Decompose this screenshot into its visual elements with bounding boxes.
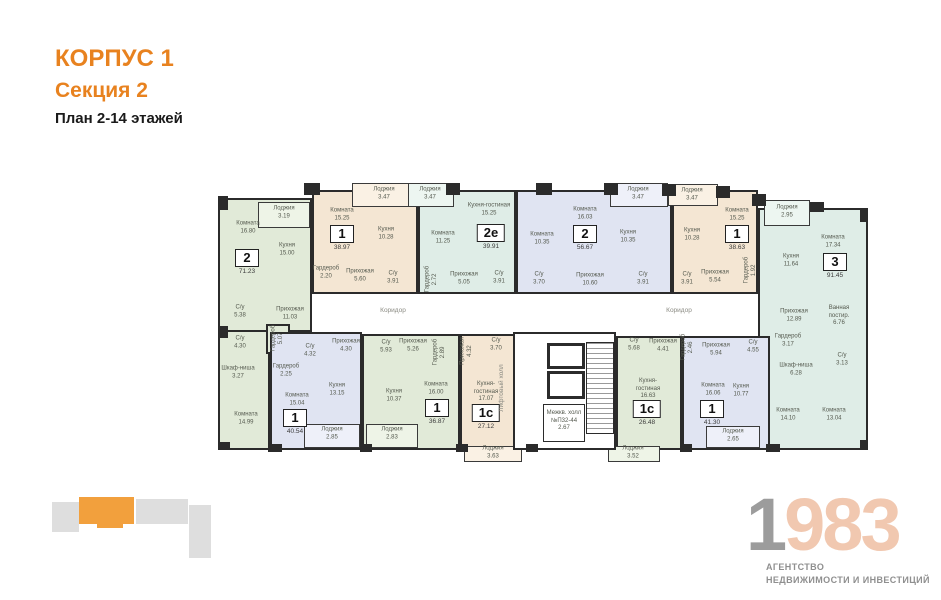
room-label: Комната17.34 [811,235,855,250]
wall-pier [766,444,780,452]
room-label: Ванная постир.6.76 [822,305,856,328]
room-label: Комната15.25 [320,208,364,223]
wall-pier [810,202,824,212]
building-title: КОРПУС 1 [55,42,183,76]
room-label: Лоджия3.52 [611,446,655,461]
apartment-badge: 391.45 [823,253,847,279]
wall-pier [218,442,230,450]
room-label: Комната16.03 [563,207,607,222]
apartment-badge: 271.23 [235,249,259,275]
section-title: Секция 2 [55,76,183,106]
wall-pier [526,444,538,452]
room-label: Кухня-гостиная15.25 [467,203,511,218]
room-label: Кухня10.37 [372,389,416,404]
room-label: Гардероб2.89 [433,339,448,365]
mini-plan-current-section [79,497,134,524]
room-label: Комната10.35 [520,232,564,247]
room-label: Гардероб5.07 [271,325,286,351]
room-label: Лоджия2.95 [765,205,809,220]
wall-pier [360,444,372,452]
mini-plan-current-section-notch [97,524,123,528]
mini-plan-block [52,502,79,532]
room-label: Шкаф-ниша3.27 [216,366,260,381]
room-label: С/у5.38 [218,305,262,320]
room-label: Комната16.80 [226,221,270,236]
room-label: Лоджия3.19 [262,206,306,221]
room-label: С/у3.91 [477,271,521,286]
apartment-badge: 1с27.12 [472,404,500,430]
apartment-badge: 1с26.48 [633,400,661,426]
wall-pier [680,444,692,452]
room-label: Лоджия3.47 [408,187,452,202]
room-label: С/у3.91 [371,271,415,286]
room-label: Комната14.99 [224,412,268,427]
room-label: Гардероб2.72 [425,266,440,292]
room-label: С/у4.32 [288,344,332,359]
apartment-badge: 140.54 [283,409,307,435]
apartment-badge: 138.97 [330,225,354,251]
room-label: Комната16.00 [414,382,458,397]
room-label: Шкаф-ниша6.28 [768,363,824,378]
room-label: Кухня13.15 [315,383,359,398]
room-label: Лоджия3.63 [471,446,515,461]
inter-hall-label: Межкв. холл№П32-442.67 [546,410,582,433]
room-label: С/у4.55 [731,340,775,355]
wall-pier [536,183,552,195]
room-label: С/у3.70 [517,272,561,287]
wall-pier [860,440,868,450]
corridor-label: Коридор [649,307,709,315]
room-label: С/у3.13 [820,353,864,368]
room-label: Комната15.25 [715,208,759,223]
wall-pier [752,194,766,206]
apartment-badge: 138.63 [725,225,749,251]
staircase [586,342,614,434]
logo-year: 1983 [746,492,930,559]
room-label: Комната13.04 [812,408,856,423]
wall-pier [268,444,282,452]
room-label: Прихожая5.26 [391,339,435,354]
corridor-label: Коридор [363,307,423,315]
apartment-badge: 256.67 [573,225,597,251]
floors-subtitle: План 2-14 этажей [55,106,183,132]
room-label: С/у3.70 [474,338,518,353]
room-label: Лоджия3.47 [362,187,406,202]
room-label: Комната14.10 [766,408,810,423]
room-label: Лоджия2.83 [370,427,414,442]
wall-pier [456,444,468,452]
room-label: Гардероб2.25 [264,364,308,379]
room-label: Прихожая4.32 [460,337,475,365]
mini-plan-block [136,499,188,524]
room-label: С/у3.91 [621,272,665,287]
wall-pier [716,186,730,198]
lift-hall-label: Лифтовый холл [498,364,558,411]
room-label: Кухня10.77 [719,384,763,399]
room-label: Кухня15.00 [265,243,309,258]
agency-logo: 1983 АГЕНТСТВО НЕДВИЖИМОСТИ И ИНВЕСТИЦИЙ [746,492,930,588]
wall-pier [860,208,868,222]
room-label: Прихожая10.60 [568,273,612,288]
room-label: Комната11.25 [421,231,465,246]
room-label: Комната15.04 [275,393,319,408]
room-label: Лоджия2.65 [711,429,755,444]
apartment-badge: 136.87 [425,399,449,425]
apartment-badge: 141.30 [700,400,724,426]
room-label: С/у3.91 [665,272,709,287]
room-label: Лоджия3.47 [616,187,660,202]
wall-pier [304,183,320,195]
apartment-badge: 2е39.91 [477,224,505,250]
room-label: Кухня10.35 [606,230,650,245]
room-label: Лоджия2.85 [310,427,354,442]
room-label: Кухня-гостиная16.63 [628,378,668,401]
plan-header: КОРПУС 1 Секция 2 План 2-14 этажей [55,42,183,132]
room-label: Прихожая11.03 [268,307,312,322]
room-label: Гардероб1.92 [744,257,759,283]
room-label: Кухня10.28 [670,228,714,243]
room-label: Лоджия3.47 [670,188,714,203]
wall-pier [218,196,228,210]
mini-plan-block [189,505,211,558]
room-label: Кухня11.64 [769,254,813,269]
room-label: Прихожая12.89 [772,309,816,324]
room-label: Прихожая4.41 [641,339,685,354]
room-label: С/у4.30 [218,336,262,351]
room-label: Кухня10.28 [364,227,408,242]
